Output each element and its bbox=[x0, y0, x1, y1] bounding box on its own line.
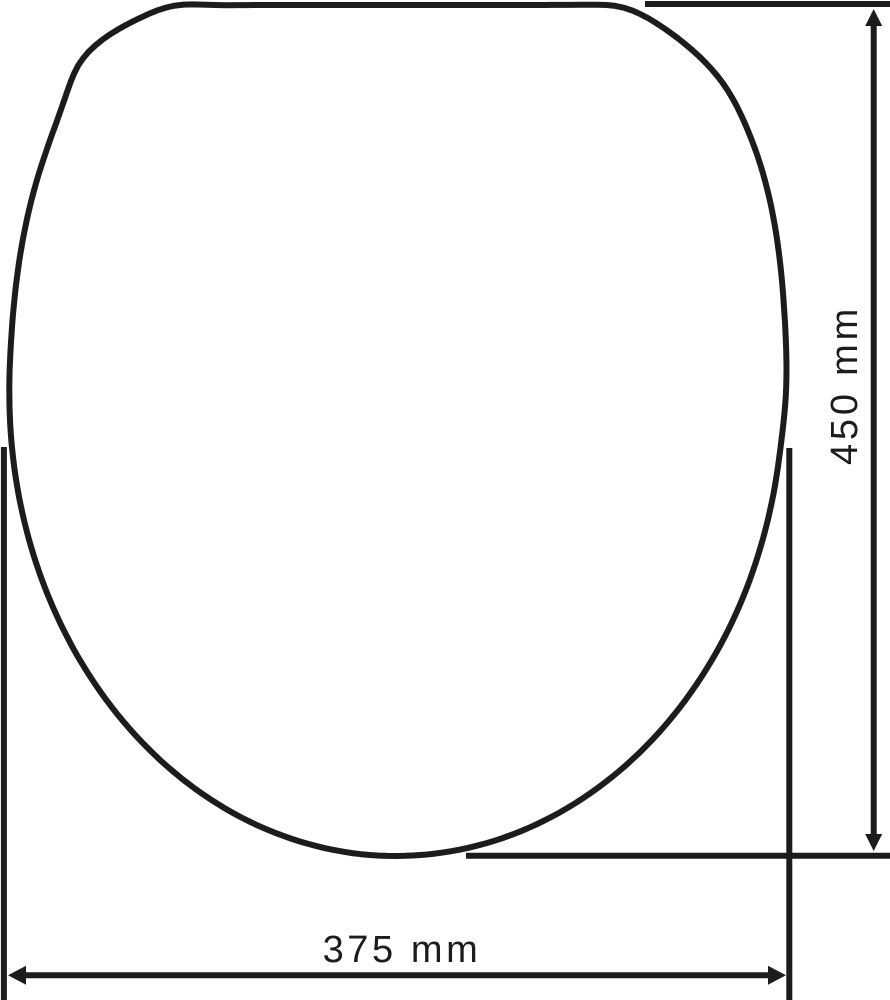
svg-text:450 mm: 450 mm bbox=[824, 305, 866, 465]
svg-text:375 mm: 375 mm bbox=[323, 929, 482, 971]
